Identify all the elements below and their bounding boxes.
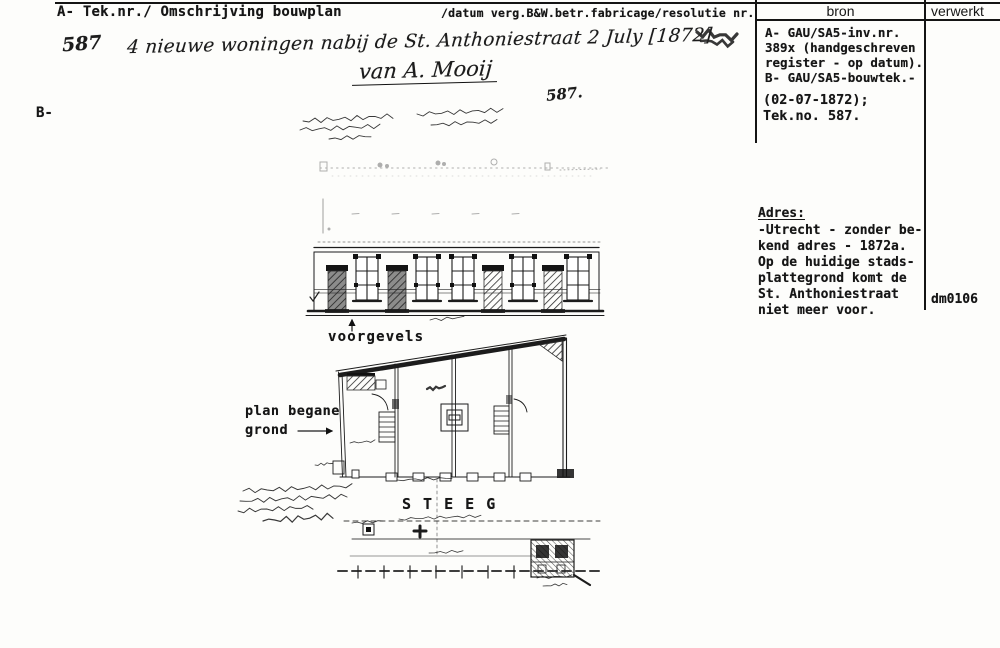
document-page: { "header": { "left_label": "A- Tek.nr./… <box>0 0 1000 648</box>
scribble-stroke <box>697 30 737 40</box>
plan-center-feature <box>441 404 468 431</box>
scribble-stroke <box>543 583 567 586</box>
scribble-stroke <box>427 386 445 390</box>
site-plan-strip <box>338 521 600 585</box>
door-swing-arc <box>372 394 388 410</box>
scribble-stroke <box>329 136 371 140</box>
scribble-stroke <box>315 463 333 466</box>
roof-outline <box>320 159 608 233</box>
scribble-stroke <box>417 108 503 116</box>
scribble-stroke <box>350 440 375 443</box>
facade-elevation <box>306 242 604 316</box>
scribble-stroke <box>300 124 380 131</box>
scribble-stroke <box>430 316 464 320</box>
scribble-stroke <box>701 40 733 46</box>
scribble-stroke <box>399 515 481 520</box>
scribble-stroke <box>240 494 347 502</box>
scribble-stroke <box>429 550 463 553</box>
scribble-stroke <box>303 114 393 123</box>
scribble-stroke <box>238 506 313 513</box>
plan-stairs <box>379 406 509 442</box>
scribble-stroke <box>243 484 352 493</box>
door-swing-arc <box>514 399 527 412</box>
scribble-stroke <box>263 513 333 522</box>
privy-block <box>531 540 590 585</box>
floor-plan <box>333 335 574 556</box>
archival-drawing <box>0 0 1000 648</box>
scribble-stroke <box>431 120 497 126</box>
